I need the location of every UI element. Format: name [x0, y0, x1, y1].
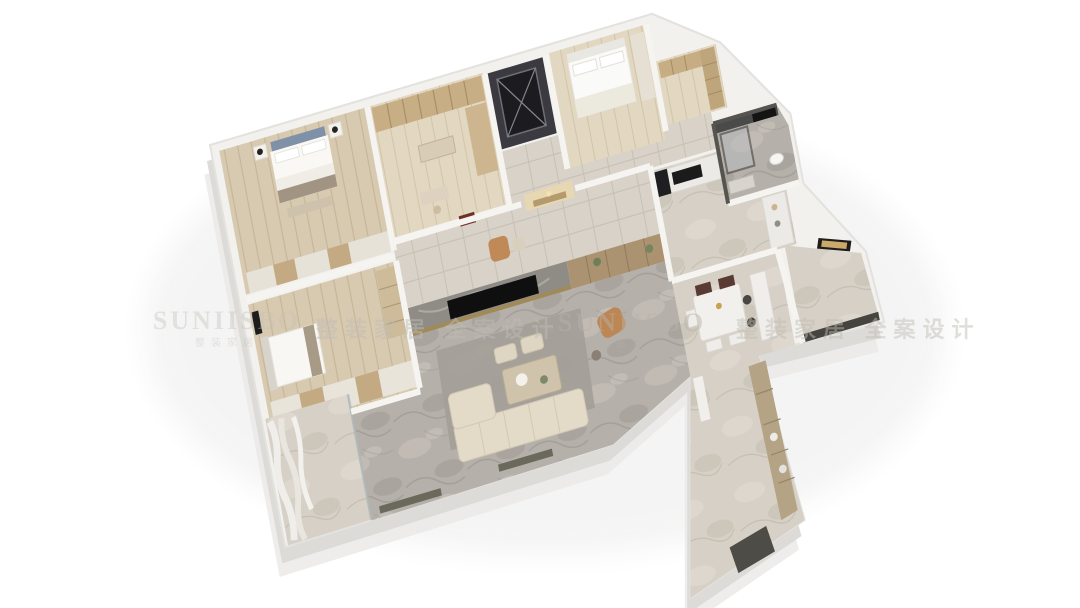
floorplan-render: SUNIISBO 整装家居 整装家居 全案设计 SUNIISBO 整装家居 整装…	[0, 0, 1080, 608]
floorplan-svg	[0, 0, 1080, 608]
bath-shower	[720, 126, 754, 173]
